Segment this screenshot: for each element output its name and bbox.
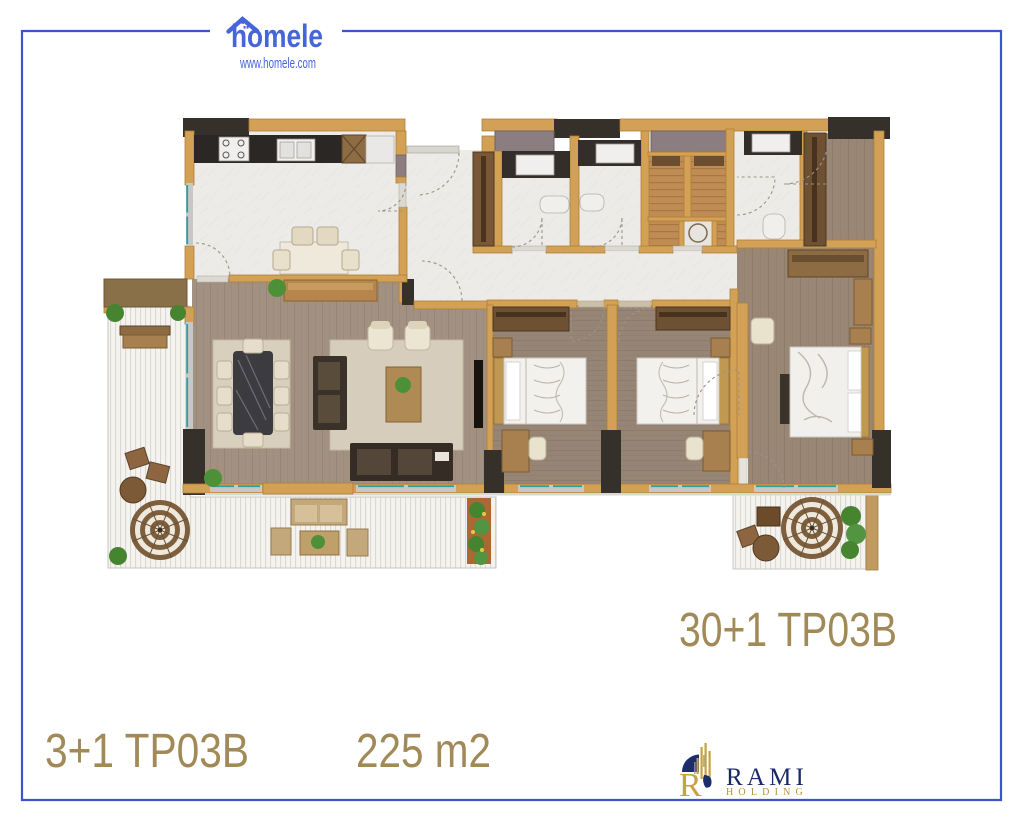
svg-text:3+1 TP03B: 3+1 TP03B [45,725,249,778]
svg-text:www.homele.com: www.homele.com [239,55,316,72]
svg-text:225 m2: 225 m2 [356,725,491,778]
svg-text:HOLDING: HOLDING [726,787,808,798]
svg-text:30+1 TP03B: 30+1 TP03B [679,604,897,657]
